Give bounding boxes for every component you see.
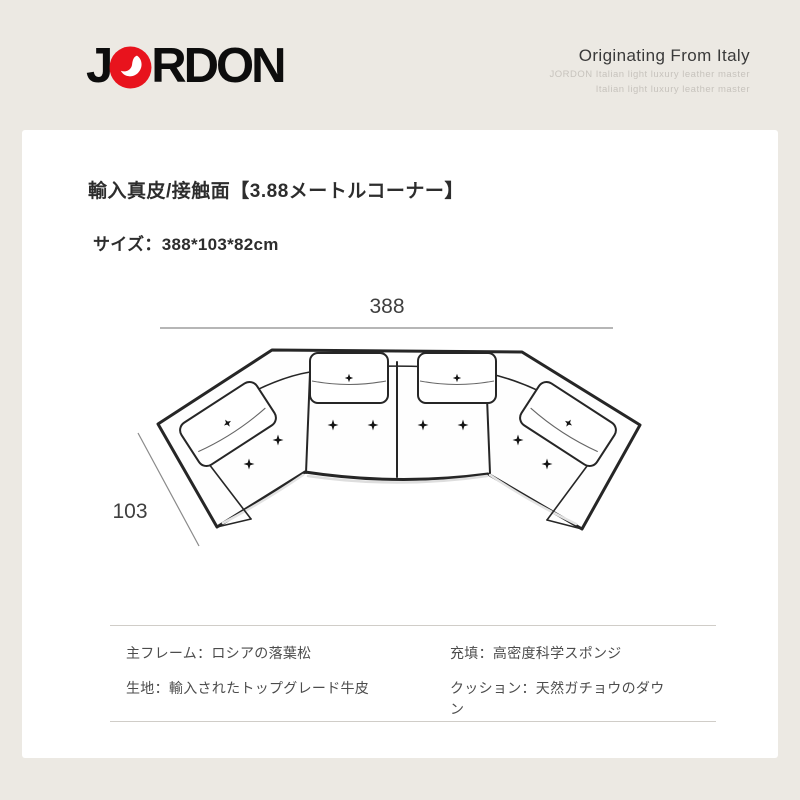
product-title: 輸入真皮/接触面【3.88メートルコーナー】 bbox=[88, 176, 464, 203]
spec-column-right: 充填：高密度科学スポンジ クッション：天然ガチョウのダウン bbox=[450, 643, 678, 721]
width-dimension-label: 388 bbox=[369, 295, 404, 318]
product-size: サイズ：388*103*82cm bbox=[93, 230, 279, 255]
brand-logo: J RDON bbox=[86, 42, 284, 91]
page-background: J RDON Originating From Italy JORDON Ita… bbox=[0, 0, 800, 800]
logo-letters-rest: RDON bbox=[151, 42, 283, 91]
depth-dimension-label: 103 bbox=[112, 500, 147, 523]
sofa-diagram: 388 103 bbox=[100, 282, 700, 567]
logo-o-icon bbox=[109, 46, 152, 89]
spec-filling: 充填：高密度科学スポンジ bbox=[450, 643, 678, 663]
spec-frame: 主フレーム：ロシアの落葉松 bbox=[126, 643, 450, 663]
logo-letter-j: J bbox=[86, 42, 110, 91]
tagline-subline-2: Italian light luxury leather master bbox=[549, 84, 750, 96]
header-right: Originating From Italy JORDON Italian li… bbox=[549, 46, 750, 96]
product-card: 輸入真皮/接触面【3.88メートルコーナー】 サイズ：388*103*82cm … bbox=[22, 130, 778, 758]
spec-section: 主フレーム：ロシアの落葉松 生地：輸入されたトップグレード牛皮 充填：高密度科学… bbox=[110, 625, 716, 722]
tagline-subline-1: JORDON Italian light luxury leather mast… bbox=[549, 69, 750, 81]
width-dimension: 388 bbox=[160, 295, 613, 328]
tagline: Originating From Italy bbox=[549, 46, 750, 66]
spec-column-left: 主フレーム：ロシアの落葉松 生地：輸入されたトップグレード牛皮 bbox=[110, 643, 450, 721]
spec-fabric: 生地：輸入されたトップグレード牛皮 bbox=[126, 678, 450, 698]
spec-cushion: クッション：天然ガチョウのダウン bbox=[450, 678, 678, 719]
